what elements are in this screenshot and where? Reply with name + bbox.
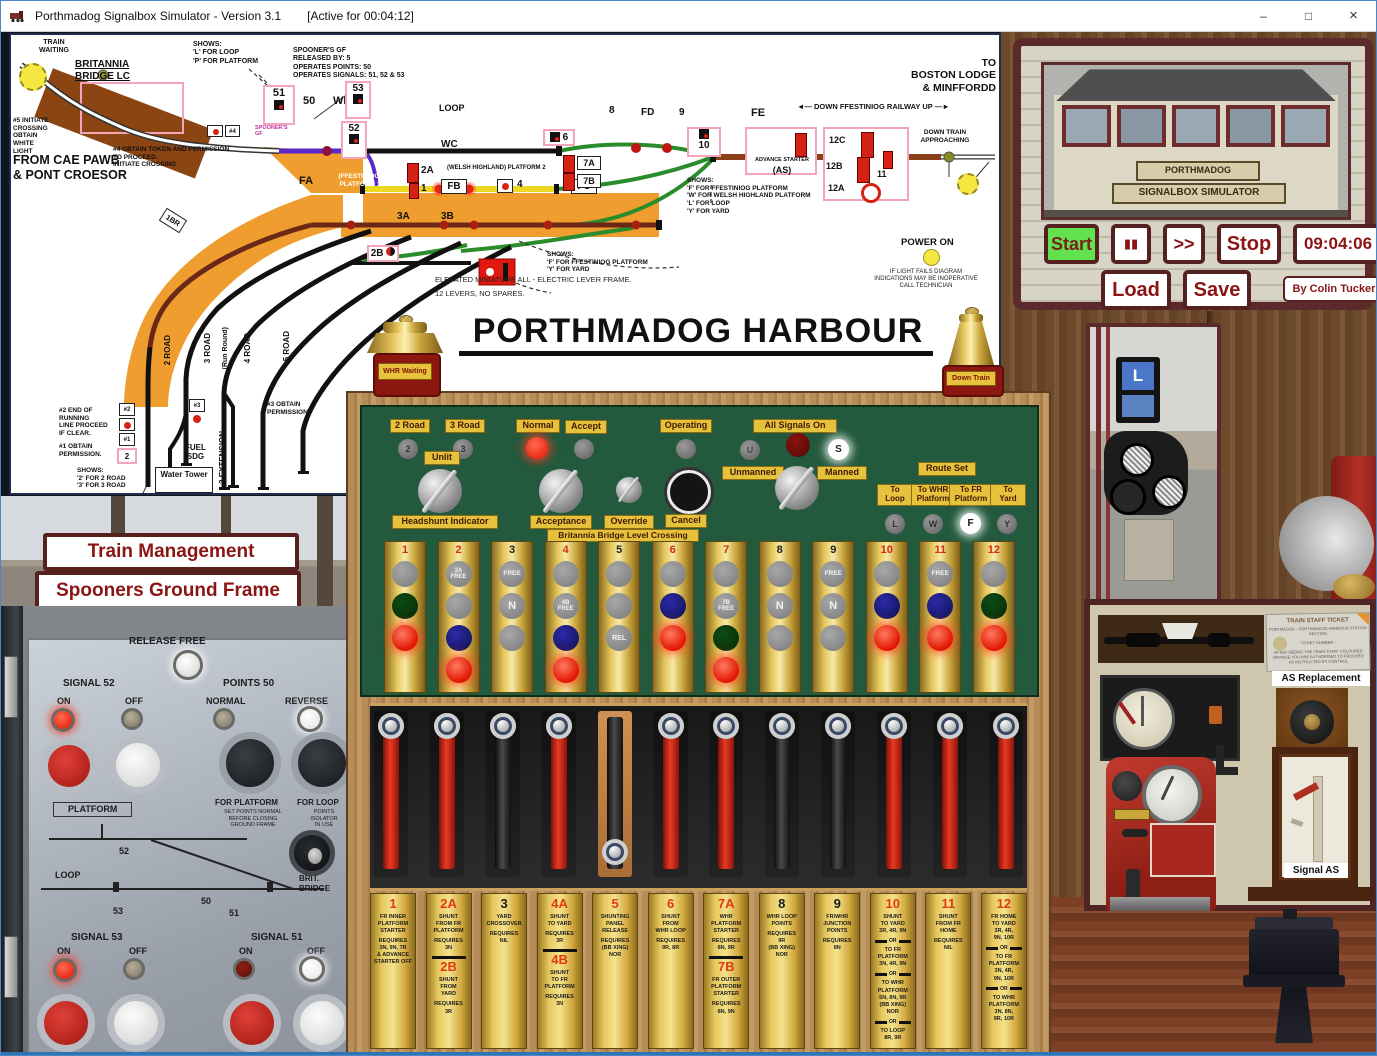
plate-number: 2A: [440, 897, 457, 911]
acceptance-switch[interactable]: [539, 469, 583, 513]
lever-plate-7A: 7AWHR PLATFORM STARTERREQUIRES 8N, 9R7BF…: [703, 893, 749, 1049]
clock-display: 09:04:06: [1293, 224, 1377, 264]
plate-text: WHR PLATFORM STARTER: [711, 914, 741, 935]
token-dial: [1142, 765, 1202, 825]
label-down-up: ◄— DOWN FFESTINIOG RAILWAY UP —►: [797, 103, 997, 112]
brass-bolt: [1333, 574, 1375, 600]
label-2-road: 2 ROAD: [163, 335, 172, 365]
title-underline: [459, 351, 933, 356]
headshunt-switch[interactable]: [418, 469, 462, 513]
indicator-number: 9: [830, 544, 836, 558]
crossing-light: [19, 63, 47, 91]
loop-berth-mark-2: [267, 882, 273, 892]
label-down-train-approaching: DOWN TRAIN APPROACHING: [914, 129, 976, 144]
lever-indicator-8: 8N: [759, 541, 801, 693]
plate-text: REQUIRES 8N, 9R: [712, 938, 741, 952]
plate-number: 4A: [551, 897, 568, 911]
normal-label: Normal: [516, 419, 560, 433]
for-loop-label: FOR LOOP: [297, 798, 339, 808]
indicator-lamp: [392, 593, 418, 619]
porthmadog-sign: PORTHMADOG: [1136, 161, 1260, 181]
plate-text: TO WHR PLATFORM 3N, 8N, 9R, 10R: [989, 995, 1019, 1024]
indicator-lamp: [499, 625, 525, 651]
signal-52-icon: [349, 134, 359, 144]
signal-53-box: 53: [345, 81, 371, 119]
headshunt-indicator-label: Headshunt Indicator: [392, 515, 498, 529]
label-water-tower: Water Tower: [155, 467, 213, 493]
label-spooners-gf: SPOONER'S GF: [255, 125, 287, 138]
lever-plate-3: 3YARD CROSSOVERREQUIRES NIL: [481, 893, 527, 1049]
diagram-title: PORTHMADOG HARBOUR: [463, 311, 933, 351]
simulator-sign: SIGNALBOX SIMULATOR: [1112, 183, 1286, 204]
plate-text: SHUNT TO YARD 3R, 4R, 9N: [879, 914, 906, 935]
manned-switch[interactable]: [775, 466, 819, 510]
lever-frame: 2 Road 2 3 Road 3 Unlit Headshunt Indica…: [346, 391, 1051, 1056]
signal-51-label: SIGNAL 51: [251, 932, 303, 944]
accept-label: Accept: [565, 420, 607, 434]
operating-label: Operating: [660, 419, 712, 433]
label-signal-9: 9: [679, 107, 685, 119]
signal-7a-arm: [563, 155, 575, 173]
label-4-road: 4 ROAD: [243, 333, 252, 363]
yard-signal-1: #1: [119, 433, 135, 446]
plate-text: TO FR PLATFORM 3N, 4R, 9N: [878, 947, 908, 968]
signal-1-arm: [409, 183, 419, 199]
label-3b: 3B: [441, 211, 454, 223]
close-button[interactable]: ×: [1331, 1, 1376, 30]
signal-53-off-button[interactable]: [107, 994, 165, 1052]
plate-number: 7B: [718, 960, 735, 974]
route-yard-lamp: Y: [997, 514, 1017, 534]
label-obtain-token: #4 OBTAIN TOKEN AND PERMISSION TO PROCEE…: [113, 146, 229, 169]
signal-10-box: 10: [687, 127, 721, 157]
lever-handle[interactable]: [434, 713, 460, 739]
signal-7b-arm: [563, 173, 575, 191]
plate-or: OR: [875, 1019, 911, 1025]
release-free-label: RELEASE FREE: [129, 636, 206, 648]
yard-signal-2: #2: [119, 403, 135, 416]
two-road-label: 2 Road: [390, 419, 430, 433]
label-fd: FD: [641, 107, 654, 119]
points-normal-lamp: [213, 708, 235, 730]
points-reverse-lamp: [297, 706, 323, 732]
all-signals-lamp: [786, 433, 810, 457]
route-fr-lamp: F: [960, 513, 981, 534]
points-50-label: POINTS 50: [223, 678, 274, 690]
signal-12a-disc: [861, 183, 881, 203]
indicator-lamp: FREE: [820, 561, 846, 587]
indicator-number: 6: [670, 544, 676, 558]
signal-base: [1124, 519, 1174, 581]
lever-2[interactable]: [426, 711, 468, 881]
lever-7[interactable]: [705, 711, 747, 881]
label-spooners-note: SPOONER'S GF RELEASED BY: 5 OPERATES POI…: [293, 47, 405, 80]
label-power-on: POWER ON: [901, 237, 954, 248]
indicator-bank: 122A FREE3FREEN44B FREE5REL677B FREE8N9F…: [384, 541, 1015, 697]
token-plate: [1150, 823, 1216, 877]
indicator-lamp: 4B FREE: [553, 593, 579, 619]
signal-52-off-button[interactable]: [109, 736, 167, 794]
signal-52-on-label: ON: [57, 696, 71, 707]
points-reverse-label: REVERSE: [285, 696, 328, 707]
advance-starter-signal: [795, 133, 807, 157]
ticket-note: AFTER SEEING THE TRAIN STAFF COLOURED OR…: [1267, 648, 1369, 665]
indicator-lamp: [981, 593, 1007, 619]
lever-bar: [495, 717, 511, 869]
schematic-52: 52: [119, 846, 129, 857]
plate-text: WHR LOOP POINTS: [767, 914, 797, 928]
lever-12[interactable]: [985, 711, 1027, 881]
label-3-road: 3 ROAD: [203, 333, 212, 363]
points-for-platform-button[interactable]: [219, 732, 281, 794]
plate-number: 5: [612, 897, 619, 911]
active-timer: [Active for 00:04:12]: [307, 9, 414, 23]
lever-handle[interactable]: [881, 713, 907, 739]
plate-number: 9: [834, 897, 841, 911]
indicator-lamp: [820, 625, 846, 651]
route-indicator-display: L: [1122, 362, 1154, 390]
equipment-display-cabinet: TRAIN STAFF TICKET PORTMADOG - PORTHMADO…: [1084, 599, 1376, 911]
plate-text: YARD CROSSOVER: [486, 914, 521, 928]
lever-indicator-11: 11FREE: [919, 541, 961, 693]
credit-label: By Colin Tucker: [1283, 276, 1377, 302]
hinge: [4, 656, 18, 718]
label-initiate-crossing: #5 INITIATE CROSSING OBTAIN WHITE LIGHT: [13, 117, 49, 155]
signal-12b-arm: [857, 157, 870, 183]
plate-number: 4B: [551, 953, 568, 967]
indicator-lamp: N: [767, 593, 793, 619]
schematic-brit-bridge: BRIT. BRIDGE: [299, 874, 330, 893]
indicator-lamp: [713, 561, 739, 587]
lever-bar: [439, 717, 455, 869]
indicator-number: 12: [988, 544, 1000, 558]
lever-handle[interactable]: [937, 713, 963, 739]
indicator-number: 1: [402, 544, 408, 558]
maximize-button[interactable]: □: [1286, 1, 1331, 30]
loop-line: [41, 888, 323, 890]
plate-text: REQUIRES 3N, 9N, 7R & ADVANCE STARTER OF…: [374, 938, 412, 967]
plate-text: REQUIRES 8N, 9N: [712, 1001, 741, 1015]
plate-text: FR/WHR JUNCTION POINTS: [823, 914, 851, 935]
schematic-50: 50: [201, 896, 211, 907]
to-fr-platform-label: To FR Platform: [949, 484, 993, 506]
indicator-lamp: N: [499, 593, 525, 619]
lever-bar: [830, 717, 846, 869]
indicator-lamp: [874, 625, 900, 651]
indicator-lamp: [553, 657, 579, 683]
display-shelf: [1248, 887, 1374, 901]
label-obtain-permission-1: #1 OBTAIN PERMISSION.: [59, 443, 102, 458]
lever-plate-8: 8WHR LOOP POINTSREQUIRES 9R (BB XING) NO…: [759, 893, 805, 1049]
indicator-number: 10: [881, 544, 893, 558]
signal-52-off-label: OFF: [125, 696, 143, 707]
lever-indicator-9: 9FREEN: [812, 541, 854, 693]
label-to-boston-lodge: TO BOSTON LODGE & MINFFORDD: [901, 57, 996, 94]
down-train-label: Down Train: [946, 371, 996, 386]
plate-number: 6: [667, 897, 674, 911]
start-button[interactable]: Start: [1044, 224, 1099, 264]
route-whr-lamp: W: [923, 514, 943, 534]
signal-53-icon: [353, 94, 363, 104]
signal-53-on-lamp: [53, 958, 77, 982]
lever-indicator-2: 22A FREE: [438, 541, 480, 693]
block-shelf-panel: 2 Road 2 3 Road 3 Unlit Headshunt Indica…: [360, 405, 1039, 697]
lever-1[interactable]: [370, 711, 412, 881]
override-switch[interactable]: [616, 477, 642, 503]
operating-lamp: [676, 439, 696, 459]
plate-text: FR OUTER PLATFORM STARTER: [711, 977, 741, 998]
indicator-lamp: [606, 593, 632, 619]
lever-indicator-5: 5REL: [598, 541, 640, 693]
two-road-lamp: 2: [398, 439, 418, 459]
release-free-lamp: [173, 650, 203, 680]
window-bottom-edge: [1, 1052, 1376, 1055]
signal-53-off-label: OFF: [129, 946, 147, 957]
plate-text: REQUIRES 8N: [823, 938, 852, 952]
train-staff-ticket: TRAIN STAFF TICKET PORTMADOG - PORTHMADO…: [1266, 612, 1371, 672]
label-5-road: 5 ROAD: [282, 331, 291, 361]
signal-51-off-button[interactable]: [293, 994, 351, 1052]
route-indicator-box: L: [1116, 357, 1160, 423]
lever-5[interactable]: [594, 711, 636, 881]
plate-text: SHUNT TO YARD: [548, 914, 572, 928]
points-normal-label: NORMAL: [206, 696, 246, 707]
hinge: [4, 936, 18, 998]
platform-note: SET POINTS NORMAL BEFORE CLOSING GROUND …: [213, 809, 293, 829]
indicator-lamp: [927, 625, 953, 651]
indicator-lamp: [446, 625, 472, 651]
label-from-cae-pawb: FROM CAE PAWB & PONT CROESOR: [13, 153, 127, 183]
signal-51-on-label: ON: [239, 946, 253, 957]
label-light-fails: IF LIGHT FAILS DIAGRAM INDICATIONS MAY B…: [867, 269, 985, 290]
unmanned-lamp: U: [740, 440, 760, 460]
all-signals-on-label: All Signals On: [753, 419, 837, 433]
indicator-lamp: [660, 593, 686, 619]
label-wc: WC: [441, 139, 458, 151]
indicator-lamp: [392, 625, 418, 651]
plate-text: REQUIRES 3N: [545, 994, 574, 1008]
label-fuel-sdg: FUEL SDG: [185, 443, 206, 462]
minimize-button[interactable]: –: [1241, 1, 1286, 30]
loop-berth-mark: [113, 882, 119, 892]
advance-starter-box: ADVANCE STARTER (AS): [745, 127, 817, 175]
unmanned-label: Unmanned: [722, 466, 784, 480]
label-britannia-bridge: BRITANNIA BRIDGE LC: [75, 59, 130, 83]
indicator-lamp: [446, 657, 472, 683]
indicator-lamp: [553, 561, 579, 587]
label-4: 4: [517, 179, 523, 191]
signal-51-on-lamp: [233, 958, 255, 980]
override-label: Override: [604, 515, 654, 529]
signal-52-mark: [101, 824, 103, 840]
signal-51-on-button[interactable]: [223, 994, 281, 1052]
whr-waiting-bell[interactable]: WHR Waiting: [367, 315, 443, 395]
schematic-53: 53: [113, 906, 123, 917]
plate-bank: 1FR INNER PLATFORM STARTERREQUIRES 3N, 9…: [370, 893, 1027, 1053]
accept-lamp: [574, 439, 594, 459]
lever-plate-6: 6SHUNT FROM WHR LOOPREQUIRES 9R, 8R: [648, 893, 694, 1049]
crank-handle[interactable]: [1216, 745, 1242, 779]
label-3-extension: 3 EXTENSION: [218, 431, 227, 484]
signal-12-box: 12C 12B 11 12A: [823, 127, 909, 201]
fast-forward-button[interactable]: >>: [1163, 224, 1205, 264]
signal-53-on-button[interactable]: [37, 994, 95, 1052]
signal-52-on-button[interactable]: [41, 738, 97, 794]
signal-lens-dark: [1110, 479, 1146, 515]
indicator-lamp: [767, 625, 793, 651]
lever-handle[interactable]: [602, 839, 628, 865]
indicator-lamp: [767, 561, 793, 587]
plate-text: REQUIRES 9R (BB XING) NOR: [762, 931, 802, 960]
indicator-lamp: [660, 561, 686, 587]
app-window: Porthmadog Signalbox Simulator - Version…: [0, 0, 1377, 1056]
signal-4-lamp-icon: [207, 125, 223, 137]
lever-4[interactable]: [538, 711, 580, 881]
indicator-number: 11: [934, 544, 946, 558]
plate-or: OR: [875, 971, 911, 977]
label-7b: 7B: [577, 174, 601, 188]
train-staff-photo: [1098, 615, 1264, 663]
release-keyswitch[interactable]: [289, 830, 335, 876]
indicator-number: 8: [777, 544, 783, 558]
signal-head: [1104, 431, 1188, 515]
plate-text: REQUIRES NIL: [490, 931, 519, 945]
label-obtain-permission-3: #3 OBTAIN PERMISSION.: [267, 401, 310, 416]
label-run-round: (Run Round): [222, 327, 229, 369]
lever-11[interactable]: [929, 711, 971, 881]
plate-text: REQUIRES NIL: [934, 938, 963, 952]
lever-indicator-3: 3FREEN: [491, 541, 533, 693]
cancel-label: Cancel: [665, 514, 707, 528]
plate-text: REQUIRES 9R, 8R: [656, 938, 685, 952]
lever-indicator-12: 12: [973, 541, 1015, 693]
lever-plate-11: 11SHUNT FROM FR HOMEREQUIRES NIL: [925, 893, 971, 1049]
indicator-lamp: [874, 561, 900, 587]
label-shows-loop-platform: SHOWS: 'L' FOR LOOP 'P' FOR PLATFORM: [193, 41, 258, 66]
for-platform-label: FOR PLATFORM: [215, 798, 278, 808]
block-switch: [1209, 706, 1222, 724]
train-management-button[interactable]: Train Management: [43, 533, 299, 571]
indicator-lamp: FREE: [927, 561, 953, 587]
signal-53-on-label: ON: [57, 946, 71, 957]
indicator-lamp: [660, 625, 686, 651]
indicator-number: 2: [455, 544, 461, 558]
plate-text: SHUNT FROM WHR LOOP: [656, 914, 686, 935]
plate-text: REQUIRES 3R: [545, 931, 574, 945]
lever-9[interactable]: [817, 711, 859, 881]
indicator-lamp: [713, 657, 739, 683]
token-machine-photo: [1106, 757, 1216, 911]
as-replacement-plunger-photo: [1276, 688, 1348, 756]
pause-button[interactable]: ▮▮: [1111, 224, 1151, 264]
plate-text: SHUNT TO FR PLATFORM: [545, 970, 575, 991]
manned-label: Manned: [817, 466, 867, 480]
simulator-control-panel: PORTHMADOG SIGNALBOX SIMULATOR Start ▮▮ …: [1013, 38, 1373, 310]
indicator-lamp: 2A FREE: [446, 561, 472, 587]
window-title: Porthmadog Signalbox Simulator - Version…: [35, 9, 281, 23]
block-instrument-dial: [1113, 688, 1175, 750]
lever-plate-1: 1FR INNER PLATFORM STARTERREQUIRES 3N, 9…: [370, 893, 416, 1049]
lever-3[interactable]: [482, 711, 524, 881]
signal-4-id-icon: #4: [225, 125, 240, 137]
signal-12c-arm: [861, 132, 874, 158]
yard-route-indicator: 2: [117, 448, 137, 464]
ground-signal-photo: L: [1086, 323, 1221, 605]
label-platform-1: (FFESTINIOG) PLATFORM 1: [333, 173, 387, 188]
lever-indicator-4: 44B FREE: [545, 541, 587, 693]
label-shows-fwly: SHOWS: 'F' FOR FFESTINIOG PLATFORM 'W' F…: [687, 177, 811, 215]
signal-52-off-lamp: [121, 708, 143, 730]
lever-bar: [774, 717, 790, 869]
signal-52-label: SIGNAL 52: [63, 678, 115, 690]
yard-signal-lamp: [119, 418, 135, 431]
signal-2a-arm: [407, 163, 419, 183]
indicator-lamp: [446, 593, 472, 619]
signal-4-disc: [497, 179, 513, 193]
plate-text: TO WHR PLATFORM 5N, 8N, 9R (BB XING) NOR: [873, 980, 913, 1016]
load-button[interactable]: Load: [1101, 270, 1171, 310]
unlit-label: Unlit: [424, 451, 460, 465]
route-loop-lamp: L: [885, 514, 905, 534]
block-bell-photo: [1249, 917, 1341, 1043]
label-fa: FA: [299, 175, 313, 188]
indicator-lamp: FREE: [499, 561, 525, 587]
plate-number: 3: [500, 897, 507, 911]
plate-or: OR: [875, 938, 911, 944]
signal-lens-top: [1120, 443, 1154, 477]
plate-number: 8: [778, 897, 785, 911]
lever-bar: [551, 717, 567, 869]
plate-text: REQUIRES (BB XING) NOR: [595, 938, 635, 959]
save-button[interactable]: Save: [1183, 270, 1251, 310]
ticket-title: TRAIN STAFF TICKET: [1267, 617, 1369, 625]
signal-52-box: 52: [341, 121, 367, 159]
signal-lens-right: [1152, 475, 1186, 509]
lever-handle[interactable]: [490, 713, 516, 739]
lever-indicator-1: 1: [384, 541, 426, 693]
signal-53-label: SIGNAL 53: [71, 932, 123, 944]
signal-2b-box: 2B: [367, 245, 399, 262]
power-on-lamp: [923, 249, 940, 266]
indicator-number: 5: [616, 544, 622, 558]
lever-10[interactable]: [873, 711, 915, 881]
lever-6[interactable]: [650, 711, 692, 881]
lever-8[interactable]: [761, 711, 803, 881]
lever-handle[interactable]: [546, 713, 572, 739]
spooners-ground-frame-button[interactable]: Spooners Ground Frame: [35, 571, 301, 611]
indicator-lamp: [606, 561, 632, 587]
plate-number: 7A: [718, 897, 735, 911]
plate-text: TO FR PLATFORM 3N, 4R, 9N, 10R: [989, 954, 1019, 983]
signalbox-photo: PORTHMADOG SIGNALBOX SIMULATOR: [1041, 62, 1351, 220]
plate-text: REQUIRES 3N: [434, 938, 463, 952]
lever-bar: [998, 717, 1014, 869]
route-set-label: Route Set: [918, 462, 976, 476]
lever-indicator-6: 6: [652, 541, 694, 693]
lever-handle[interactable]: [658, 713, 684, 739]
ticket-line1: PORTMADOG - PORTHMADOG HARBOUR STATION S…: [1267, 625, 1369, 637]
to-loop-label: To Loop: [877, 484, 913, 506]
down-train-bell[interactable]: Down Train: [941, 307, 1001, 395]
stop-button[interactable]: Stop: [1217, 224, 1281, 264]
lever-handle[interactable]: [378, 713, 404, 739]
points-for-loop-button[interactable]: [291, 732, 353, 794]
lever-bar: [383, 717, 399, 869]
cancel-button[interactable]: [667, 470, 711, 514]
lever-handle[interactable]: [993, 713, 1019, 739]
label-shows-fy: SHOWS: 'F' FOR FFESTINIOG PLATFORM 'Y' F…: [547, 251, 648, 274]
plate-text: REQUIRES 3R: [434, 1001, 463, 1015]
